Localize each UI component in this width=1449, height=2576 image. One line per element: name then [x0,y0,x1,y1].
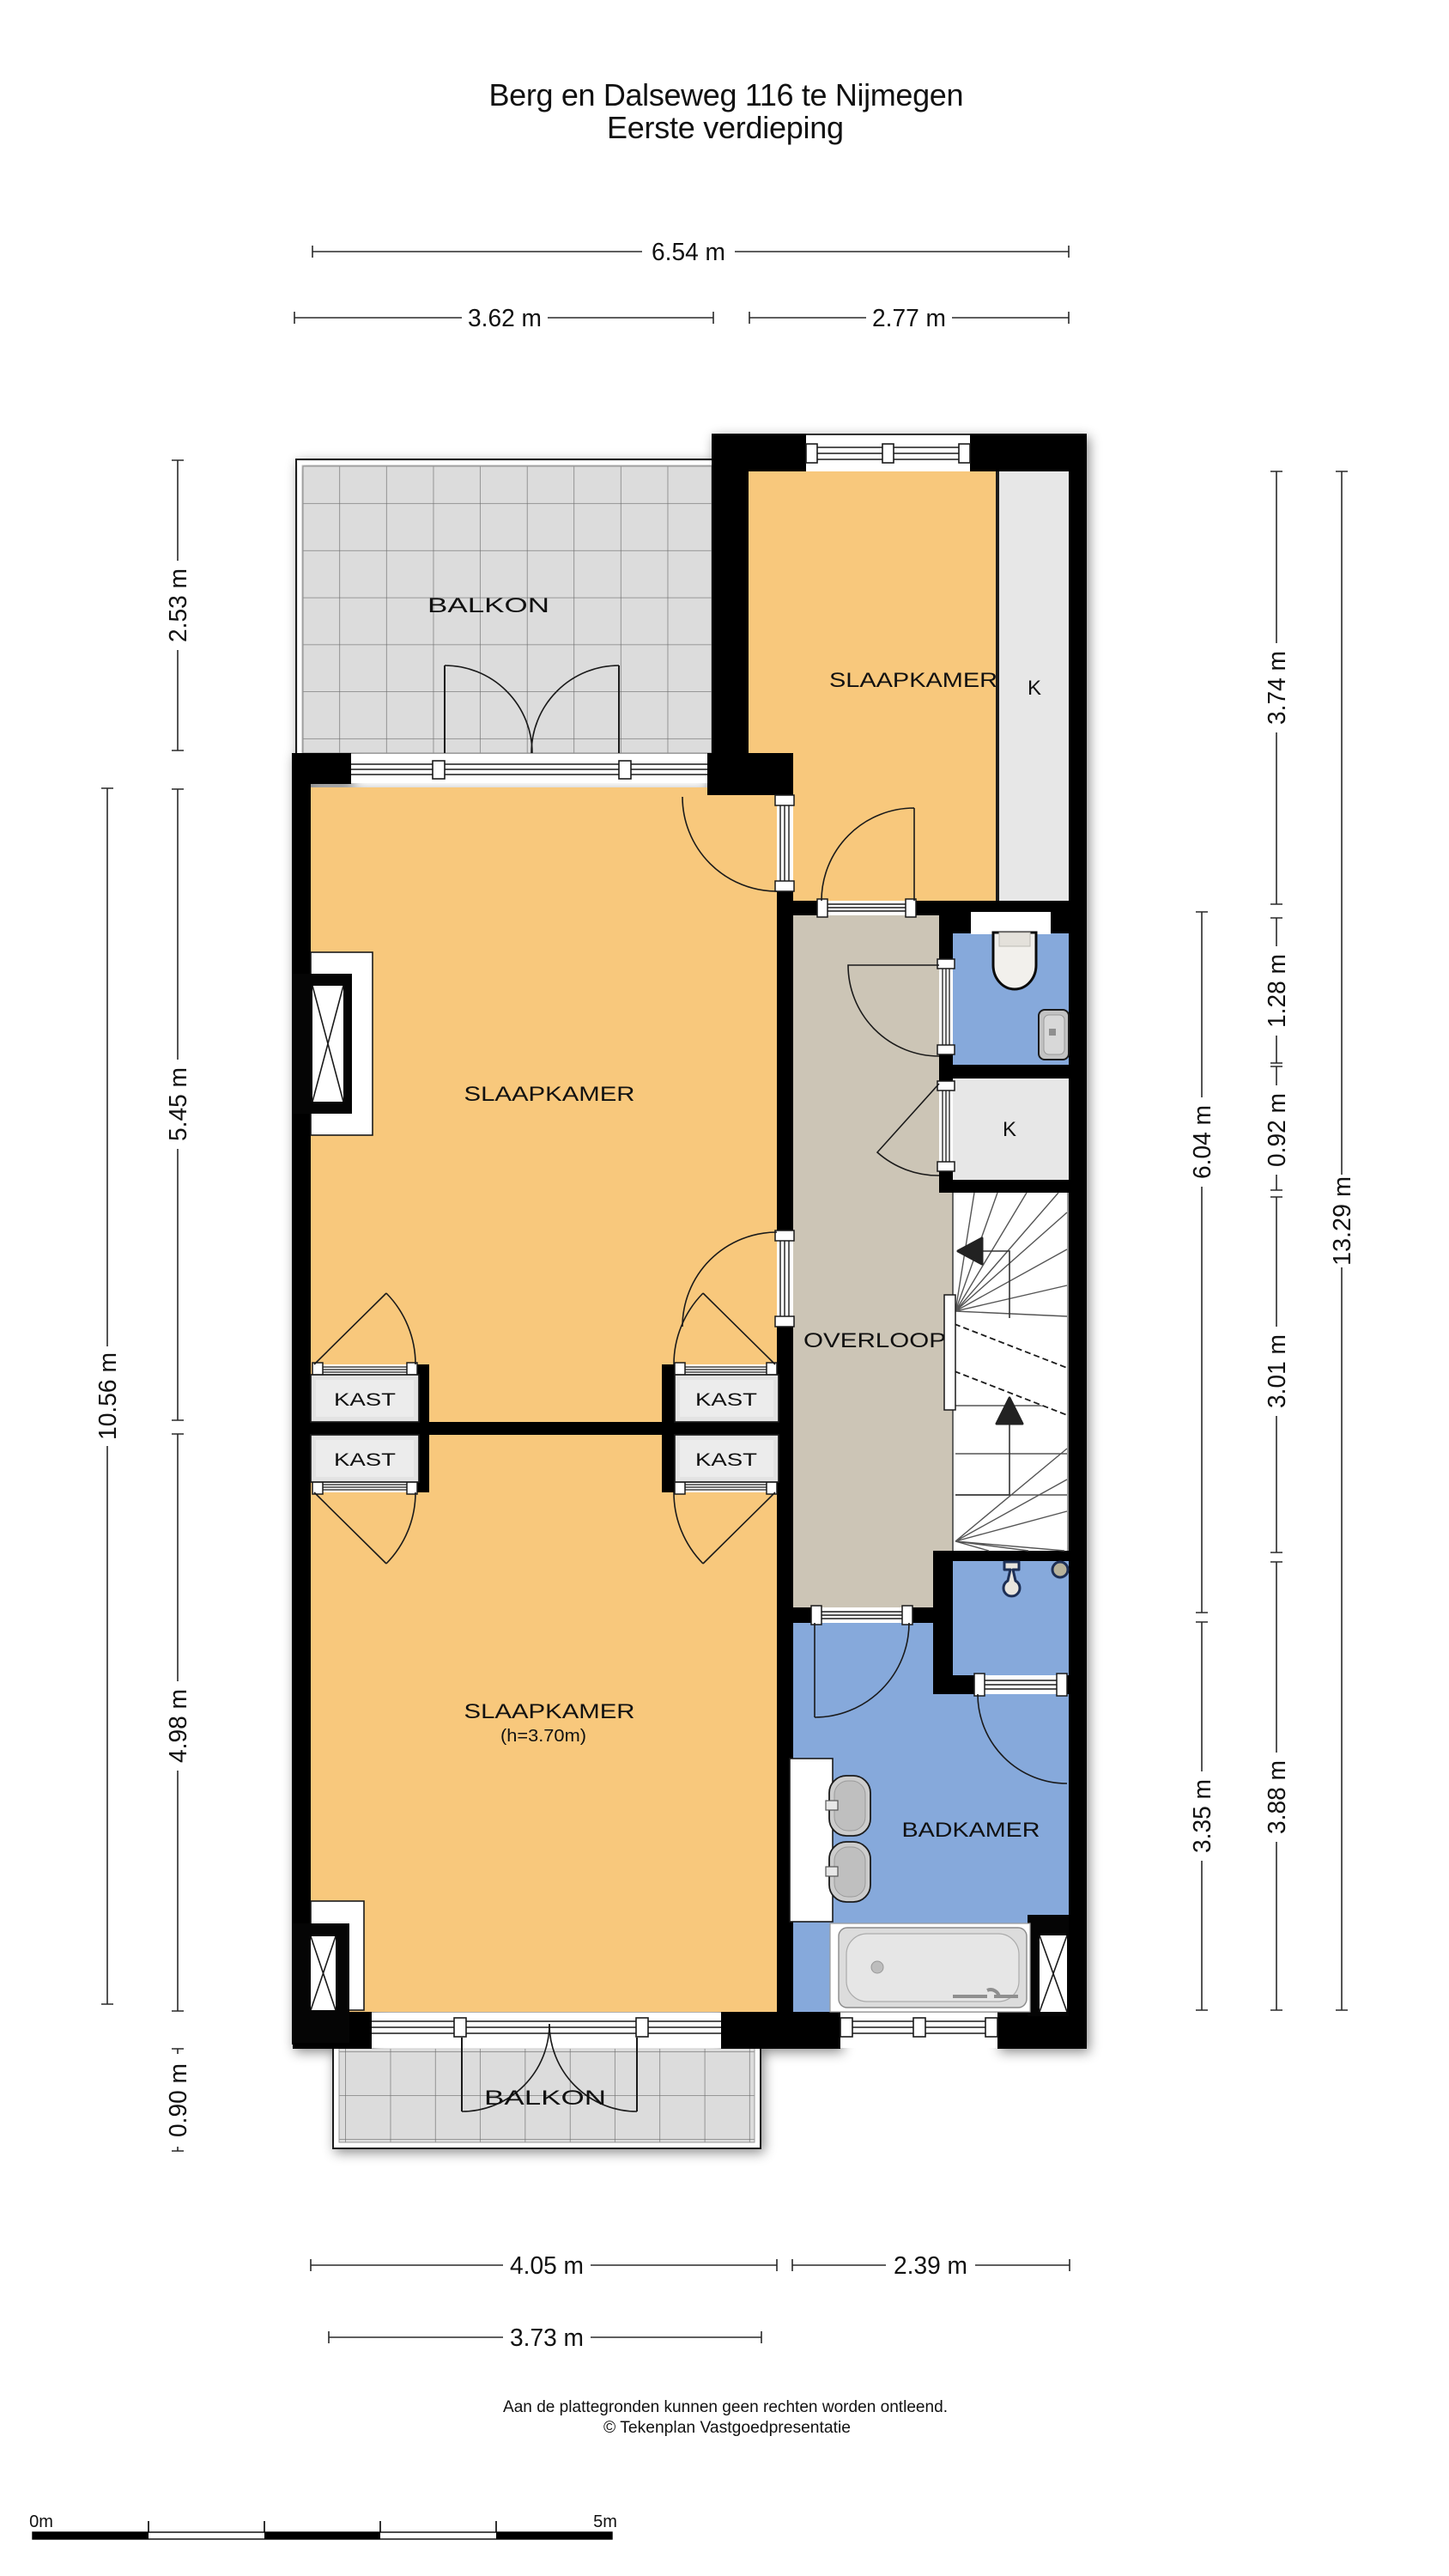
svg-text:4.05 m: 4.05 m [510,2252,584,2280]
svg-text:2.53 m: 2.53 m [165,568,192,642]
svg-text:BALKON: BALKON [484,2087,606,2110]
svg-text:K: K [1003,1118,1016,1141]
svg-text:6.54 m: 6.54 m [652,239,725,266]
svg-text:13.29 m: 13.29 m [1329,1176,1356,1266]
svg-text:2.39 m: 2.39 m [894,2252,967,2280]
svg-text:1.28 m: 1.28 m [1264,954,1291,1028]
svg-text:6.04 m: 6.04 m [1189,1105,1216,1179]
svg-text:K: K [1028,677,1041,700]
svg-text:BALKON: BALKON [427,594,549,617]
svg-text:3.88 m: 3.88 m [1264,1760,1291,1834]
svg-text:KAST: KAST [334,1450,396,1470]
svg-text:BADKAMER: BADKAMER [902,1819,1040,1842]
svg-text:SLAAPKAMER: SLAAPKAMER [464,1700,635,1723]
svg-text:3.01 m: 3.01 m [1264,1334,1291,1408]
svg-text:KAST: KAST [695,1450,757,1470]
svg-text:0.92 m: 0.92 m [1264,1093,1291,1167]
svg-text:Aan de plattegronden kunnen ge: Aan de plattegronden kunnen geen rechten… [503,2398,948,2416]
svg-text:3.74 m: 3.74 m [1264,651,1291,725]
svg-text:SLAAPKAMER: SLAAPKAMER [829,669,997,692]
svg-text:Berg en Dalseweg 116 te Nijmeg: Berg en Dalseweg 116 te Nijmegen [489,77,964,112]
svg-text:3.35 m: 3.35 m [1189,1779,1216,1853]
svg-text:0.90 m: 0.90 m [165,2063,192,2137]
svg-text:Eerste verdieping: Eerste verdieping [607,110,844,145]
svg-text:2.77 m: 2.77 m [872,305,946,332]
svg-text:3.73 m: 3.73 m [510,2324,584,2352]
svg-text:5m: 5m [593,2512,617,2531]
svg-text:© Tekenplan Vastgoedpresentati: © Tekenplan Vastgoedpresentatie [603,2419,851,2437]
svg-text:OVERLOOP: OVERLOOP [803,1329,946,1352]
svg-text:3.62 m: 3.62 m [468,305,542,332]
svg-text:5.45 m: 5.45 m [165,1067,192,1141]
svg-text:KAST: KAST [334,1390,396,1410]
svg-text:(h=3.70m): (h=3.70m) [500,1727,586,1746]
svg-text:10.56 m: 10.56 m [94,1352,122,1440]
svg-text:KAST: KAST [695,1390,757,1410]
svg-text:0m: 0m [29,2512,53,2531]
svg-text:4.98 m: 4.98 m [165,1689,192,1763]
svg-text:SLAAPKAMER: SLAAPKAMER [464,1083,635,1106]
